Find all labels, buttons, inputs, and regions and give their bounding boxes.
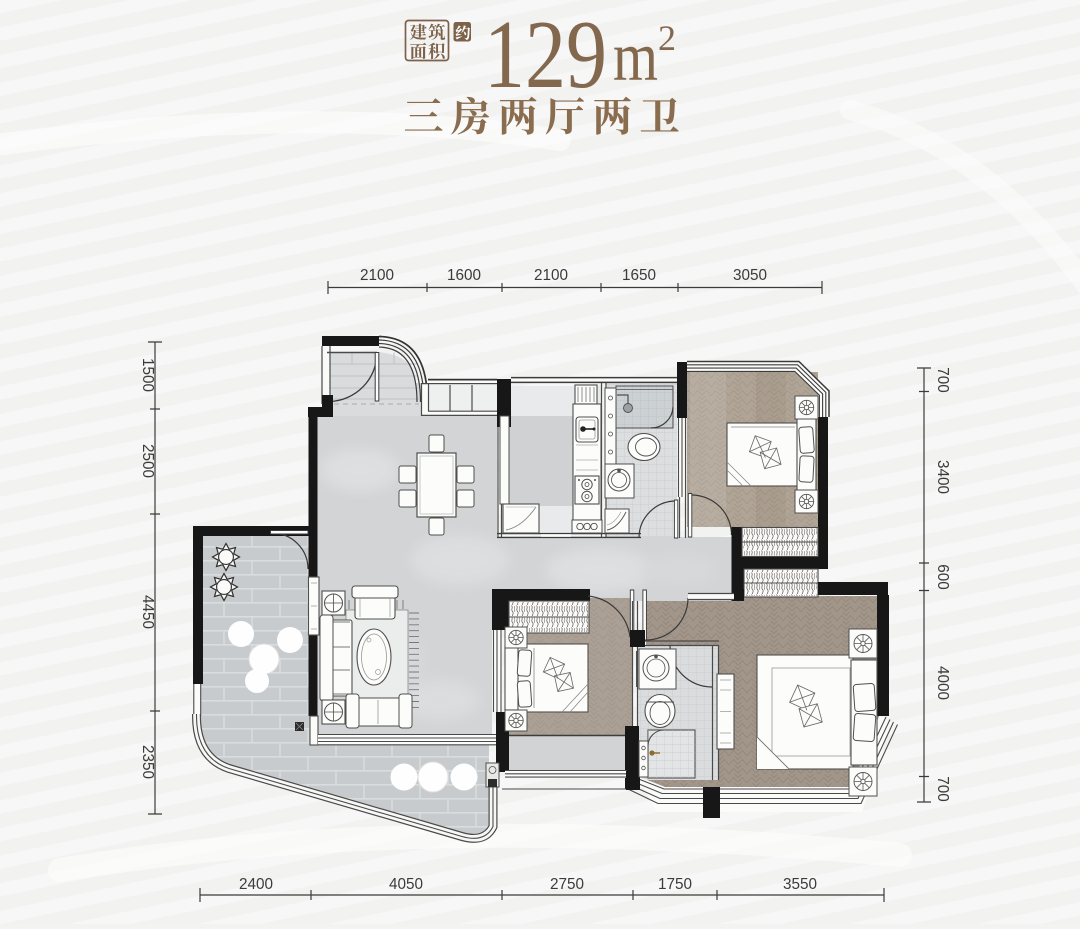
svg-text:700: 700 [934,776,951,802]
svg-text:4050: 4050 [389,876,423,893]
svg-text:1600: 1600 [447,267,481,284]
svg-text:129: 129 [484,1,607,108]
svg-text:2: 2 [658,18,676,58]
svg-text:700: 700 [934,367,951,393]
svg-text:1750: 1750 [658,876,692,893]
svg-text:1650: 1650 [622,267,656,284]
svg-text:m: m [613,19,658,96]
svg-text:4450: 4450 [139,595,156,629]
svg-text:2350: 2350 [139,745,156,779]
svg-text:2400: 2400 [239,876,273,893]
svg-text:2100: 2100 [534,267,568,284]
svg-text:3550: 3550 [783,876,817,893]
svg-text:2100: 2100 [360,267,394,284]
svg-text:600: 600 [934,564,951,590]
svg-text:3400: 3400 [934,460,951,494]
svg-text:1500: 1500 [139,358,156,392]
svg-text:4000: 4000 [934,666,951,700]
svg-text:2750: 2750 [550,876,584,893]
svg-text:2500: 2500 [139,444,156,478]
svg-text:3050: 3050 [733,267,767,284]
